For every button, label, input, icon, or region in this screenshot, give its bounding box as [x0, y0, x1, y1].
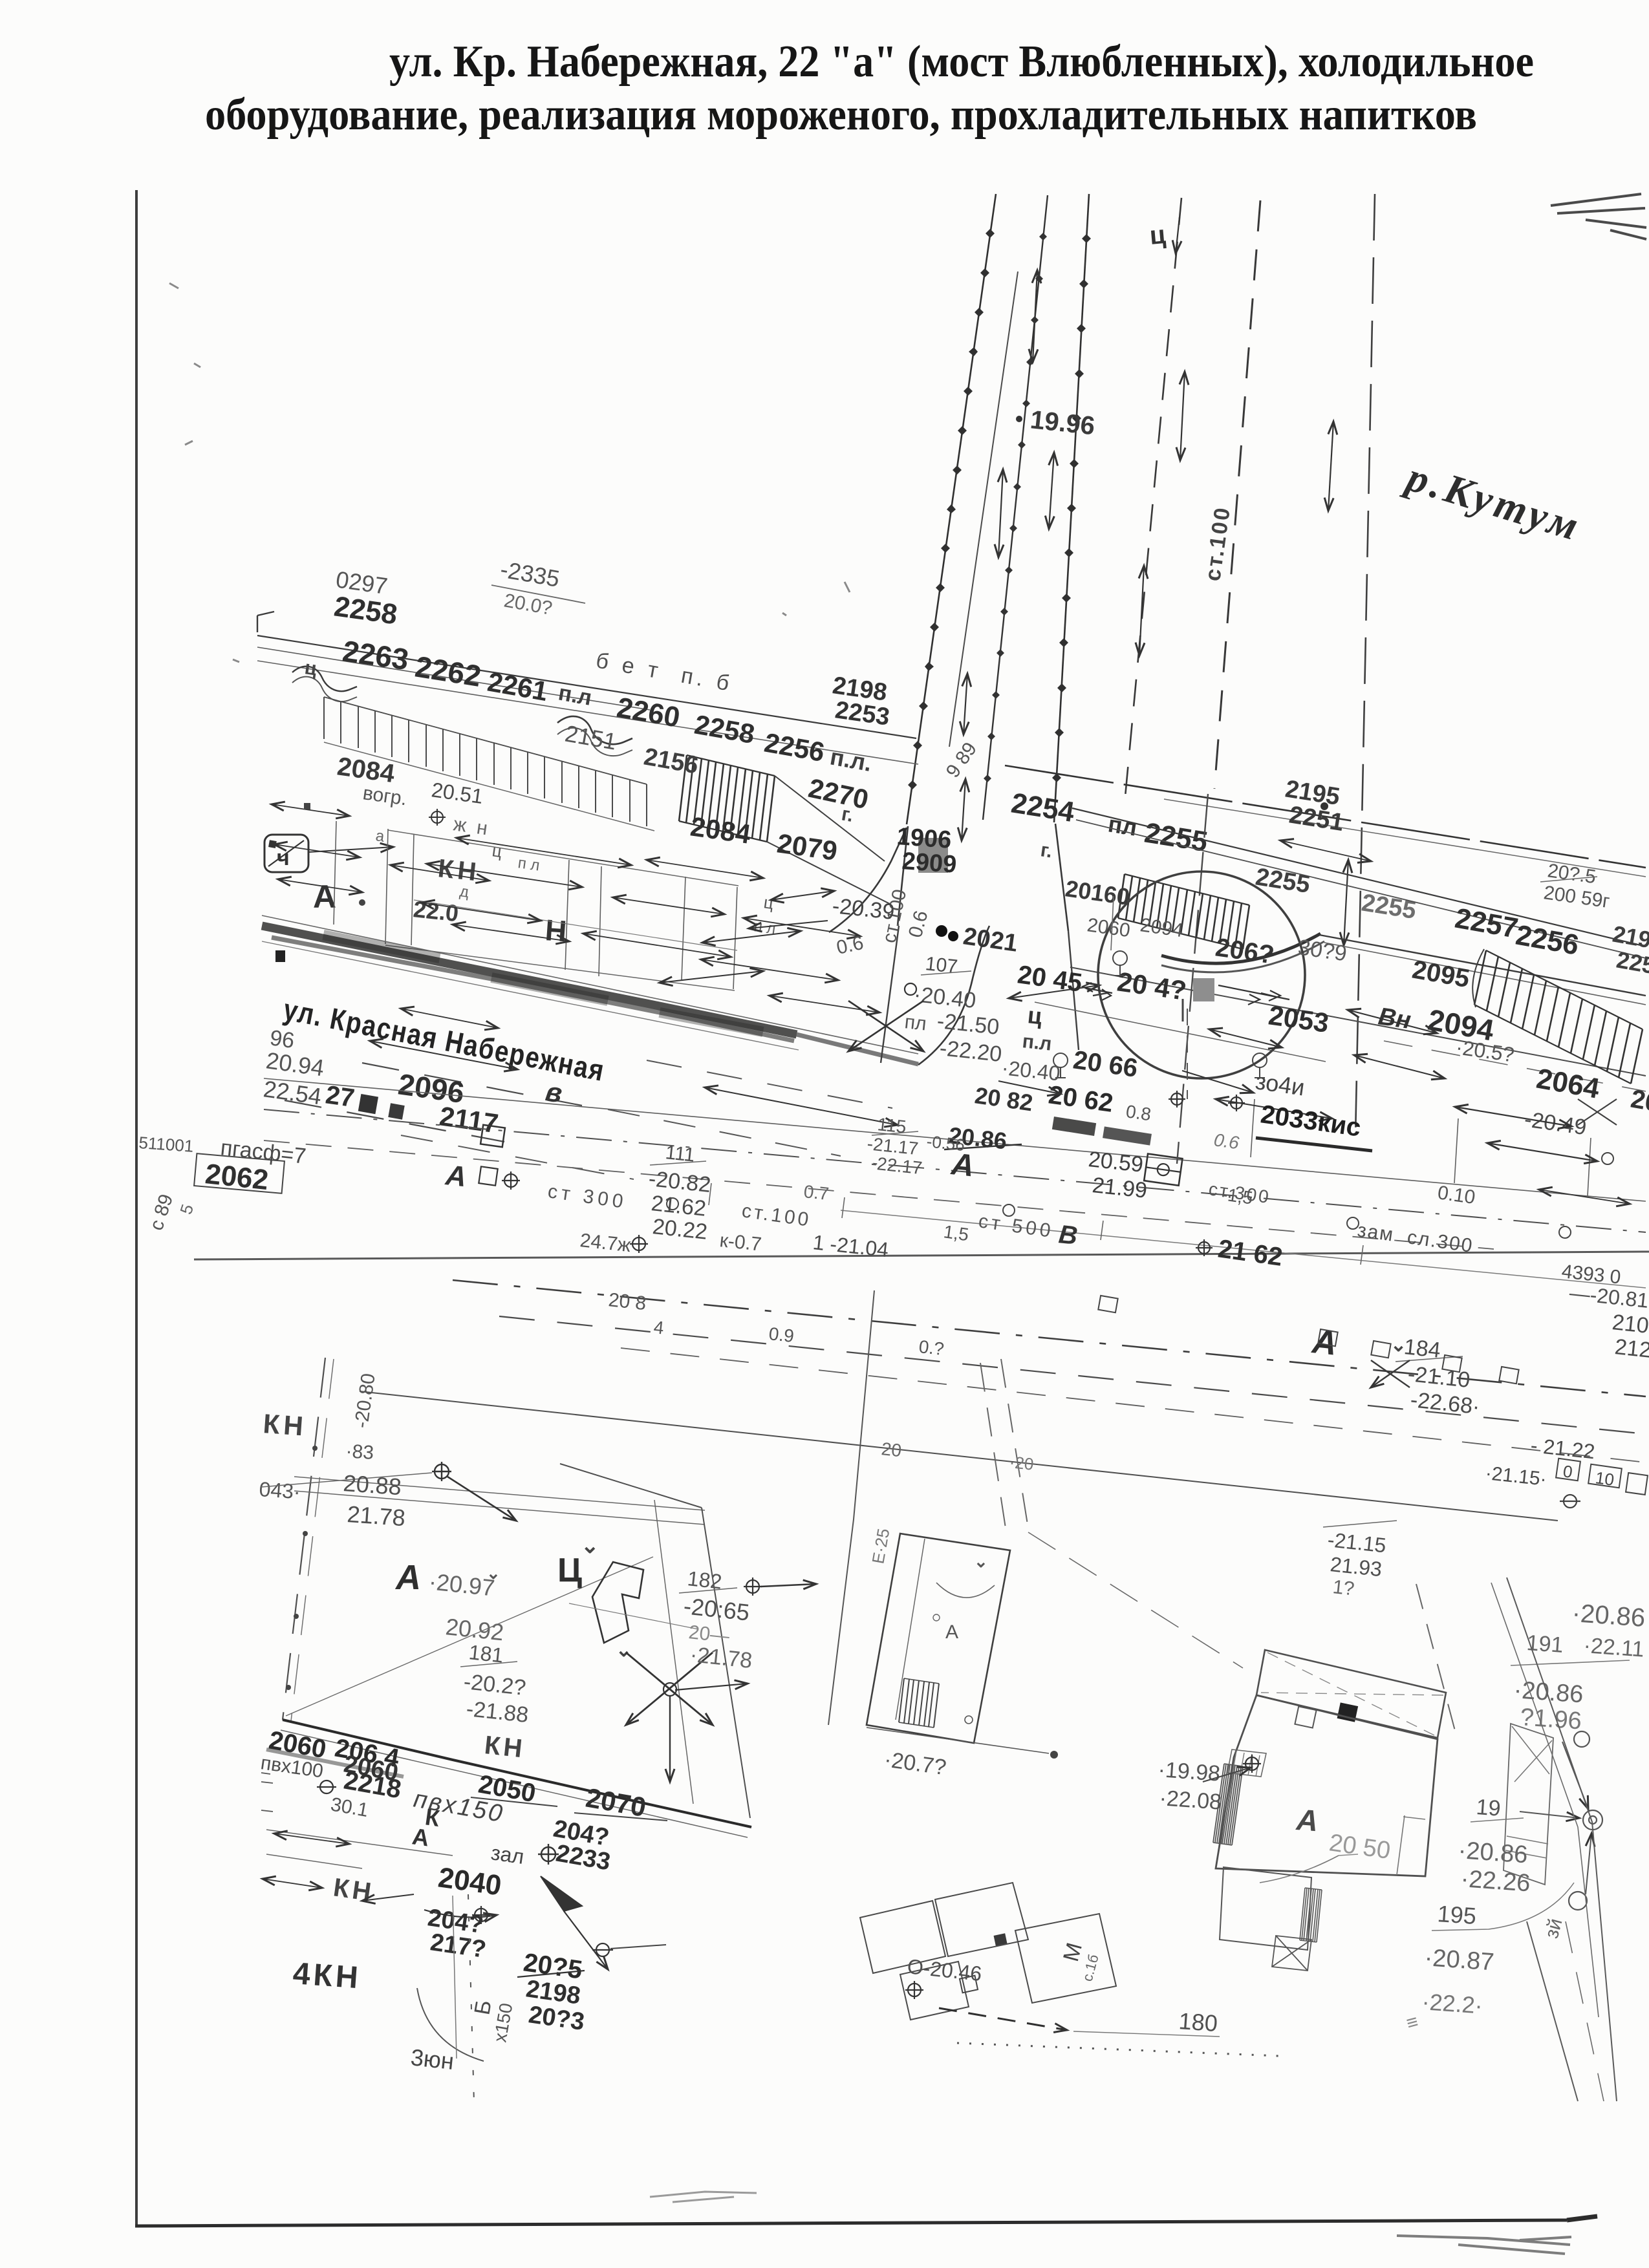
svg-text:⌄: ⌄ [1390, 1334, 1406, 1356]
svg-text:21.78: 21.78 [346, 1501, 406, 1531]
svg-text:4: 4 [652, 1317, 665, 1338]
svg-text:191: 191 [1525, 1631, 1564, 1658]
svg-text:0.8: 0.8 [1125, 1101, 1152, 1124]
svg-text:1?: 1? [1331, 1576, 1355, 1599]
svg-text:·20.86: ·20.86 [1571, 1599, 1646, 1632]
svg-text:·20.86: ·20.86 [1457, 1837, 1528, 1868]
svg-text:180: 180 [1178, 2007, 1218, 2037]
svg-text:0.?: 0.? [918, 1336, 945, 1359]
svg-text:22.0: 22.0 [412, 895, 460, 926]
svg-text:20 8: 20 8 [607, 1289, 647, 1314]
svg-text:20.88: 20.88 [342, 1470, 402, 1500]
svg-text:п л: п л [517, 854, 541, 874]
svg-text:1,5: 1,5 [942, 1221, 970, 1245]
svg-text:043·: 043· [259, 1477, 301, 1503]
svg-text:зал: зал [490, 1841, 526, 1868]
svg-text:4КН: 4КН [292, 1956, 362, 1995]
svg-text:·20.87: ·20.87 [1423, 1944, 1494, 1976]
svg-text:А: А [945, 1621, 958, 1643]
svg-text:?1.96: ?1.96 [1519, 1704, 1582, 1735]
svg-text:⌄: ⌄ [616, 1640, 632, 1661]
svg-text:0.9: 0.9 [768, 1323, 795, 1346]
svg-text:А: А [394, 1558, 421, 1597]
svg-text:19: 19 [1475, 1795, 1501, 1821]
svg-text:195: 195 [1436, 1900, 1477, 1929]
svg-text:20: 20 [880, 1439, 902, 1460]
svg-text:·83: ·83 [345, 1440, 375, 1464]
svg-text:Ц: Ц [557, 1552, 582, 1589]
svg-text:КН: КН [483, 1731, 527, 1763]
svg-text:⌄: ⌄ [486, 1563, 501, 1583]
svg-text:3юн: 3юн [409, 2044, 455, 2075]
svg-text:КН: КН [262, 1408, 308, 1442]
svg-text:ч: ч [277, 846, 290, 870]
svg-text:А: А [444, 1159, 468, 1193]
svg-text:·22.26: ·22.26 [1460, 1865, 1531, 1897]
svg-text:511001: 511001 [138, 1133, 195, 1156]
svg-text:п.л: п.л [1021, 1031, 1053, 1055]
svg-text:·22.11: ·22.11 [1582, 1633, 1644, 1662]
svg-text:А: А [1309, 1323, 1339, 1363]
svg-text:·22.2·: ·22.2· [1421, 1988, 1483, 2018]
svg-text:ул. Кр. Набережная, 22 "а" (мо: ул. Кр. Набережная, 22 "а" (мост Влюблен… [389, 37, 1534, 87]
svg-text:ц: ц [1148, 220, 1167, 250]
svg-text:0.7: 0.7 [803, 1181, 830, 1204]
svg-text:⌄: ⌄ [581, 1534, 599, 1558]
svg-text:0.6: 0.6 [1212, 1129, 1240, 1153]
svg-text:·22.08: ·22.08 [1158, 1786, 1222, 1815]
svg-text:-0.56: -0.56 [925, 1131, 965, 1155]
svg-text:А: А [313, 879, 336, 915]
svg-text:к-0.7: к-0.7 [718, 1230, 762, 1256]
svg-text:·19.98: ·19.98 [1157, 1757, 1221, 1786]
svg-text:·20: ·20 [1008, 1452, 1035, 1474]
svg-text:Н: Н [544, 913, 568, 948]
svg-text:10: 10 [1594, 1468, 1615, 1490]
svg-text:пл: пл [1106, 810, 1139, 840]
svg-text:пл: пл [903, 1011, 927, 1034]
svg-text:⌄: ⌄ [974, 1552, 988, 1571]
svg-text:А: А [1295, 1803, 1319, 1837]
svg-text:В: В [1057, 1220, 1079, 1250]
svg-text:оборудование, реализация морож: оборудование, реализация мороженого, про… [205, 90, 1477, 140]
svg-text:2062: 2062 [204, 1158, 270, 1196]
svg-text:КН: КН [332, 1873, 376, 1907]
svg-text:ц: ц [1026, 1001, 1043, 1029]
